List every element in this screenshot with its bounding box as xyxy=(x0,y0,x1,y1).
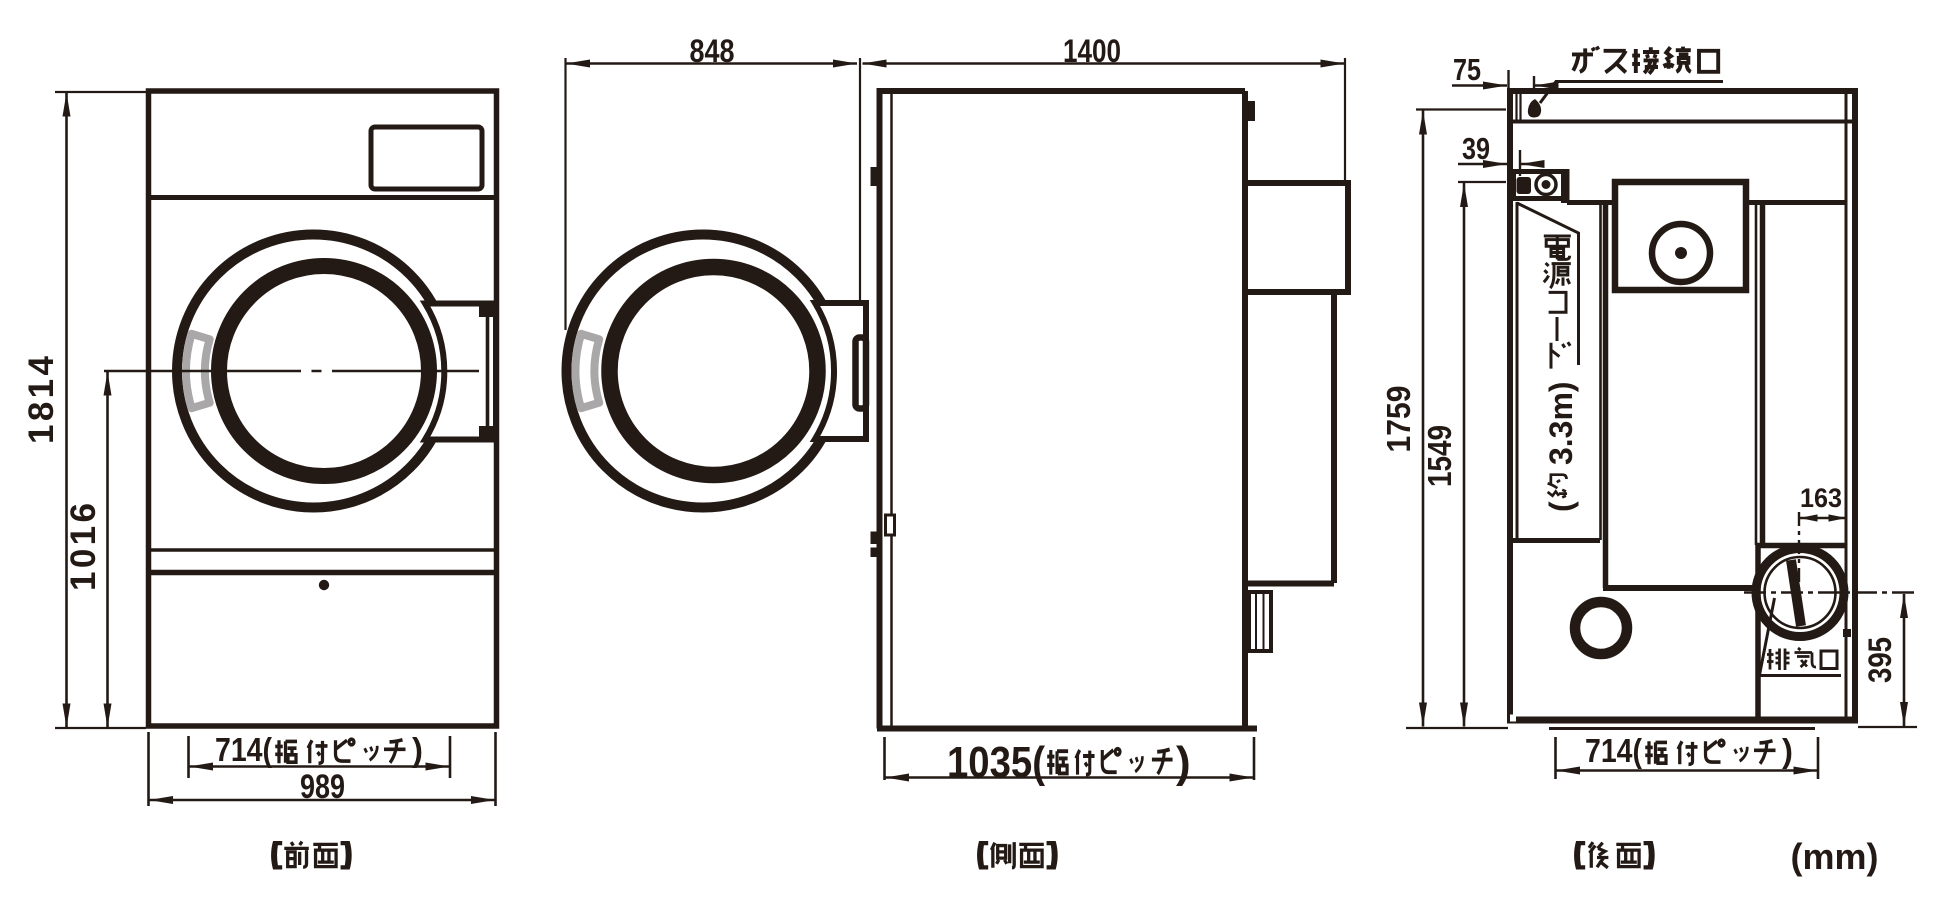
svg-text:(mm): (mm) xyxy=(1791,836,1879,877)
svg-text:163: 163 xyxy=(1800,483,1842,513)
svg-text:(: ( xyxy=(1543,501,1579,512)
svg-text:1035(: 1035( xyxy=(947,738,1045,787)
svg-text:714(: 714( xyxy=(1585,732,1642,769)
svg-text:1400: 1400 xyxy=(1063,33,1121,69)
svg-text:989: 989 xyxy=(300,768,345,806)
svg-text:75: 75 xyxy=(1453,52,1481,87)
svg-text:3.3m): 3.3m) xyxy=(1543,381,1579,465)
svg-text:395: 395 xyxy=(1862,637,1898,683)
svg-text:): ) xyxy=(1176,738,1191,787)
svg-text:): ) xyxy=(1782,732,1793,769)
svg-text:714(: 714( xyxy=(215,731,272,768)
svg-text:1549: 1549 xyxy=(1421,425,1458,487)
svg-text:39: 39 xyxy=(1462,131,1490,166)
svg-text:1759: 1759 xyxy=(1380,386,1417,453)
svg-text:): ) xyxy=(412,731,423,768)
svg-text:848: 848 xyxy=(690,33,735,69)
